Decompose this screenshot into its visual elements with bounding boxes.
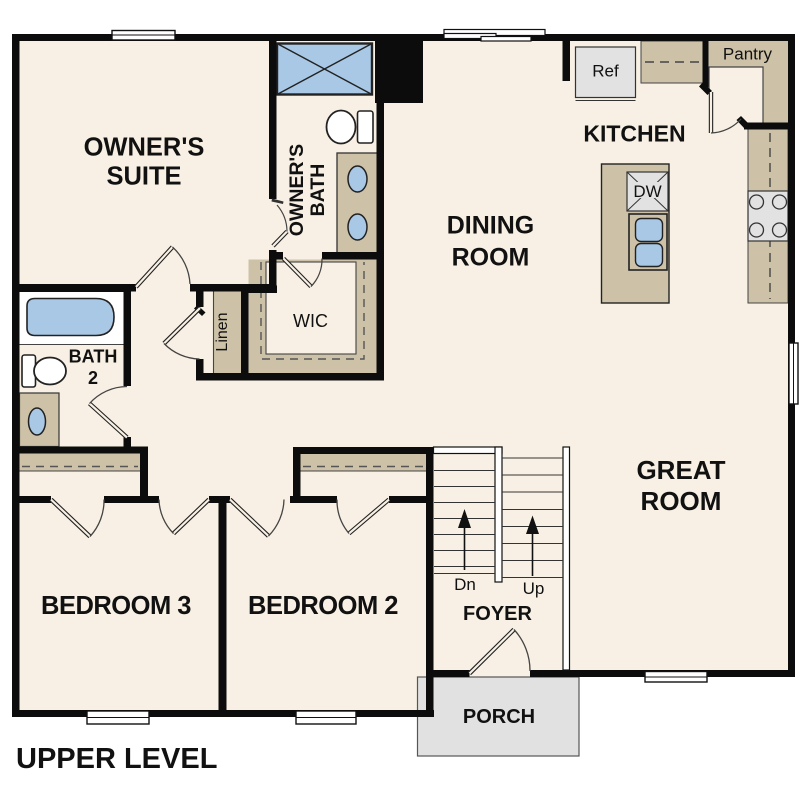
svg-text:Pantry: Pantry xyxy=(723,45,773,64)
svg-text:Ref: Ref xyxy=(592,62,619,81)
svg-text:2: 2 xyxy=(88,368,98,388)
svg-text:DINING: DINING xyxy=(447,212,535,240)
svg-text:BATH: BATH xyxy=(307,164,329,217)
svg-text:BEDROOM 2: BEDROOM 2 xyxy=(248,592,398,620)
svg-text:DW: DW xyxy=(633,182,661,201)
svg-text:Dn: Dn xyxy=(454,575,476,594)
svg-text:WIC: WIC xyxy=(293,311,328,331)
svg-text:ROOM: ROOM xyxy=(641,486,722,516)
svg-text:UPPER LEVEL: UPPER LEVEL xyxy=(16,743,217,775)
svg-text:PORCH: PORCH xyxy=(463,706,535,728)
svg-text:BATH: BATH xyxy=(69,347,118,367)
svg-text:OWNER'S: OWNER'S xyxy=(84,134,205,162)
svg-text:BEDROOM 3: BEDROOM 3 xyxy=(41,592,191,620)
svg-text:KITCHEN: KITCHEN xyxy=(583,121,685,147)
svg-text:GREAT: GREAT xyxy=(636,455,725,485)
svg-text:OWNER'S: OWNER'S xyxy=(286,144,308,236)
svg-text:ROOM: ROOM xyxy=(452,244,530,272)
svg-text:FOYER: FOYER xyxy=(463,603,532,625)
svg-text:Linen: Linen xyxy=(214,312,231,351)
svg-text:Up: Up xyxy=(523,579,545,598)
svg-text:SUITE: SUITE xyxy=(106,163,181,191)
